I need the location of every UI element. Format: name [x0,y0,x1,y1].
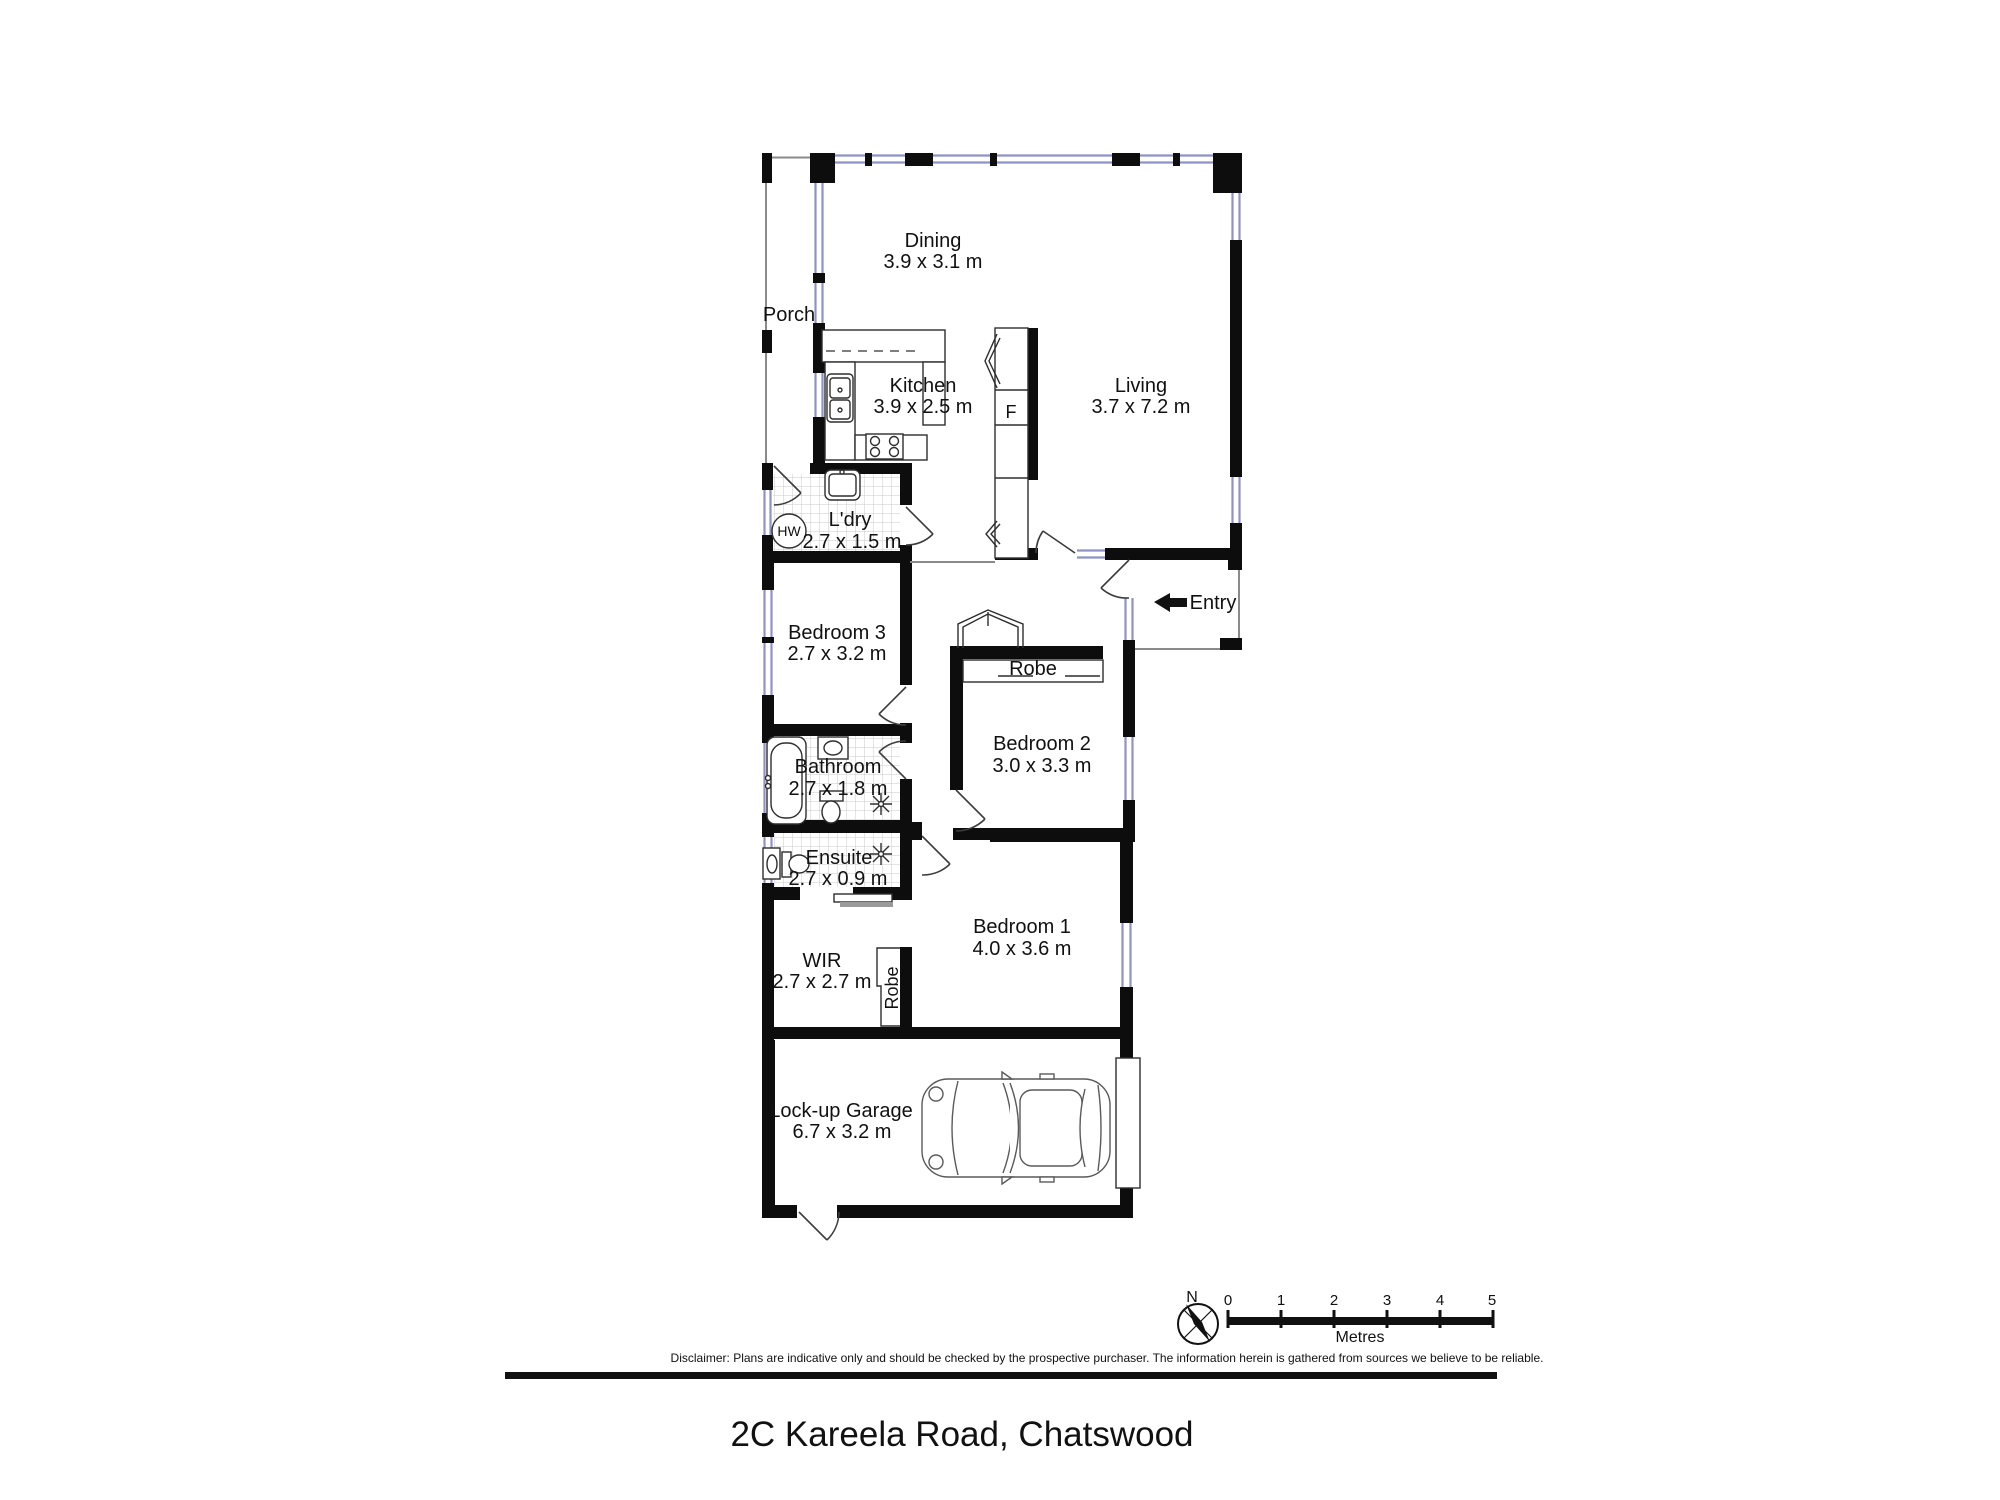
room-dims-wir: 2.7 x 2.7 m [773,971,872,993]
room-label-wir: WIR [803,950,842,972]
fridge-label: F [1006,402,1017,422]
room-label-bathroom: Bathroom [795,756,882,778]
kitchen-sink-icon [827,374,853,422]
room-label-laundry: L'dry [829,509,872,531]
room-label-living: Living [1115,375,1167,397]
room-dims-living: 3.7 x 7.2 m [1092,396,1191,418]
scale-tick-4: 4 [1436,1292,1444,1309]
hot-water-label: HW [777,523,801,539]
scale-bar: 0 1 2 3 4 5 Metres [1224,1292,1496,1346]
room-dims-bedroom1: 4.0 x 3.6 m [973,938,1072,960]
robe-bed2-label: Robe [1009,658,1057,680]
floorplan-page: HW [0,0,2000,1500]
scale-tick-1: 1 [1277,1292,1285,1309]
room-dims-laundry: 2.7 x 1.5 m [803,531,902,553]
room-dims-dining: 3.9 x 3.1 m [884,251,983,273]
room-label-kitchen: Kitchen [890,375,957,397]
scale-tick-2: 2 [1330,1292,1338,1309]
walls [762,153,1242,1218]
ensuite-sliding-door [834,894,893,907]
room-label-garage: Lock-up Garage [769,1100,912,1122]
garage-roller-door [1116,1058,1140,1188]
stove-icon [866,434,903,459]
room-label-bedroom2: Bedroom 2 [993,733,1091,755]
scale-unit-label: Metres [1336,1329,1385,1346]
room-dims-kitchen: 3.9 x 2.5 m [874,396,973,418]
car-icon [922,1072,1110,1184]
disclaimer-text: Disclaimer: Plans are indicative only an… [671,1351,1544,1365]
scale-tick-0: 0 [1224,1292,1232,1309]
ensuite-shower-icon [870,843,892,865]
scale-tick-5: 5 [1488,1292,1496,1309]
room-dims-ensuite: 2.7 x 0.9 m [789,868,888,890]
hall-cupboard [958,610,1023,648]
entry-label: Entry [1190,592,1237,614]
robe-bed1-label: Robe [882,966,902,1009]
room-label-ensuite: Ensuite [806,847,873,869]
entry-arrow-icon [1154,593,1187,612]
room-label-dining: Dining [905,230,962,252]
room-label-porch: Porch [763,304,815,326]
scale-tick-3: 3 [1383,1292,1391,1309]
footer-rule [505,1372,1497,1379]
hot-water-unit: HW [772,514,806,548]
room-label-bedroom1: Bedroom 1 [973,916,1071,938]
pantry-fridge-column [985,328,1028,558]
floorplan-svg: HW [0,0,2000,1500]
room-label-bedroom3: Bedroom 3 [788,622,886,644]
address-title: 2C Kareela Road, Chatswood [730,1415,1193,1454]
room-dims-bedroom3: 2.7 x 3.2 m [788,643,887,665]
room-dims-garage: 6.7 x 3.2 m [793,1121,892,1143]
room-dims-bedroom2: 3.0 x 3.3 m [993,755,1092,777]
room-dims-bathroom: 2.7 x 1.8 m [789,778,888,800]
compass-icon: N [1178,1289,1218,1344]
laundry-tub-icon [825,470,860,500]
ensuite-basin-icon [763,848,780,879]
